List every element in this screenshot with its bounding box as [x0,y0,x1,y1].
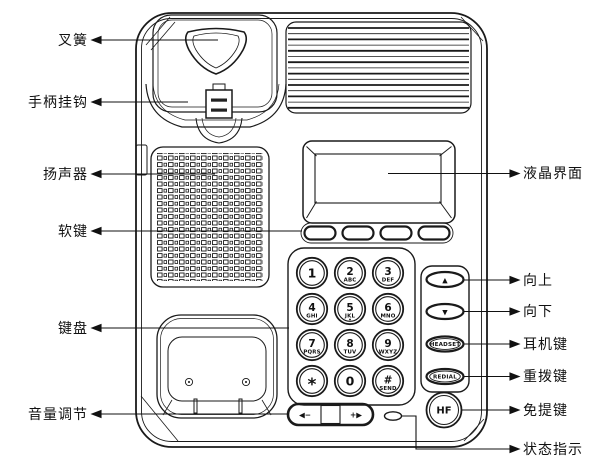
svg-text:3: 3 [384,266,391,278]
volume-up-icon: +▶ [350,411,362,420]
callout-handset-hook: 手柄挂钩 [28,92,88,112]
svg-text:7: 7 [308,338,315,350]
svg-text:9: 9 [384,338,391,350]
handsfree-button: HF [427,393,462,428]
callout-lines [92,37,519,453]
redial-button: REDIAL [427,369,464,384]
svg-text:WXYZ: WXYZ [379,350,398,356]
softkey-4 [419,227,450,240]
callout-soft-keys: 软键 [58,221,88,241]
nav-panel: ▲ ▼ HEADSET REDIAL [421,266,469,392]
tactile-dot [349,319,351,321]
callout-hook-switch: 叉簧 [58,30,88,50]
svg-text:0: 0 [346,374,355,389]
svg-text:4: 4 [308,302,315,314]
svg-text:GHI: GHI [306,314,318,320]
softkey-2 [343,227,374,240]
softkey-3 [381,227,412,240]
down-button: ▼ [427,304,464,319]
key-4: 4 GHI [297,294,327,324]
key-5: 5 JKL [335,294,365,324]
svg-text:HEADSET: HEADSET [430,342,461,348]
status-led [385,412,402,420]
key-3: 3 DEF [373,258,403,288]
svg-text:ABC: ABC [344,278,357,284]
softkey-row [301,223,453,243]
ribbed-vent [286,22,471,113]
down-arrow-icon: ▼ [442,308,448,316]
svg-text:PQRS: PQRS [303,350,320,356]
key-8: 8 TUV [335,330,365,360]
volume-down-icon: ◀− [299,411,311,420]
keypad-panel: 1 2 ABC 3 DEF 4 GHI 5 JKL 6 MNO [288,248,415,405]
up-button: ▲ [427,272,464,287]
svg-text:DEF: DEF [382,278,395,284]
handset-hook [206,84,232,118]
callout-status-indicator: 状态指示 [523,439,583,459]
key-1: 1 [297,258,327,288]
phone-line-art: 1 2 ABC 3 DEF 4 GHI 5 JKL 6 MNO [0,0,600,472]
svg-text:MNO: MNO [380,314,395,320]
svg-text:1: 1 [308,266,317,281]
svg-text:REDIAL: REDIAL [433,375,457,381]
corner-bevel-bottom-left [141,396,178,441]
callout-redial-key: 重拨键 [523,366,568,386]
callout-speaker: 扬声器 [43,164,88,184]
key-2: 2 ABC [335,258,365,288]
svg-text:*: * [308,375,317,395]
volume-rocker: ◀− +▶ [288,404,373,425]
svg-text:JKL: JKL [344,314,356,320]
key-6: 6 MNO [373,294,403,324]
svg-text:TUV: TUV [344,350,357,356]
callout-down: 向下 [523,301,553,321]
screw-right [242,378,249,385]
key-9: 9 WXYZ [373,330,403,360]
diagram-canvas: 1 2 ABC 3 DEF 4 GHI 5 JKL 6 MNO [0,0,600,472]
handset-cradle-top [146,15,286,143]
handset-cradle-bottom [157,315,277,418]
svg-text:5: 5 [346,302,353,314]
callout-volume-control: 音量调节 [28,404,88,424]
key-star: * [297,366,327,396]
speaker-grille [151,147,269,287]
key-0: 0 [335,366,365,396]
callout-lcd: 液晶界面 [523,163,583,183]
lcd-screen [303,141,455,223]
svg-text:#: # [384,375,393,387]
callout-headset-key: 耳机键 [523,334,568,354]
svg-text:HF: HF [436,406,451,417]
callout-up: 向上 [523,270,553,290]
callout-handsfree-key: 免提键 [523,400,568,420]
up-arrow-icon: ▲ [442,276,448,284]
svg-text:6: 6 [384,302,391,314]
svg-text:8: 8 [346,338,353,350]
hook-switch [186,29,247,75]
svg-text:2: 2 [346,266,353,278]
callout-keypad: 键盘 [58,318,88,338]
screw-left [185,378,192,385]
key-7: 7 PQRS [297,330,327,360]
svg-text:SEND: SEND [379,386,397,392]
headset-button: HEADSET [427,337,464,352]
key-hash: # SEND [373,366,403,396]
softkey-1 [305,227,336,240]
